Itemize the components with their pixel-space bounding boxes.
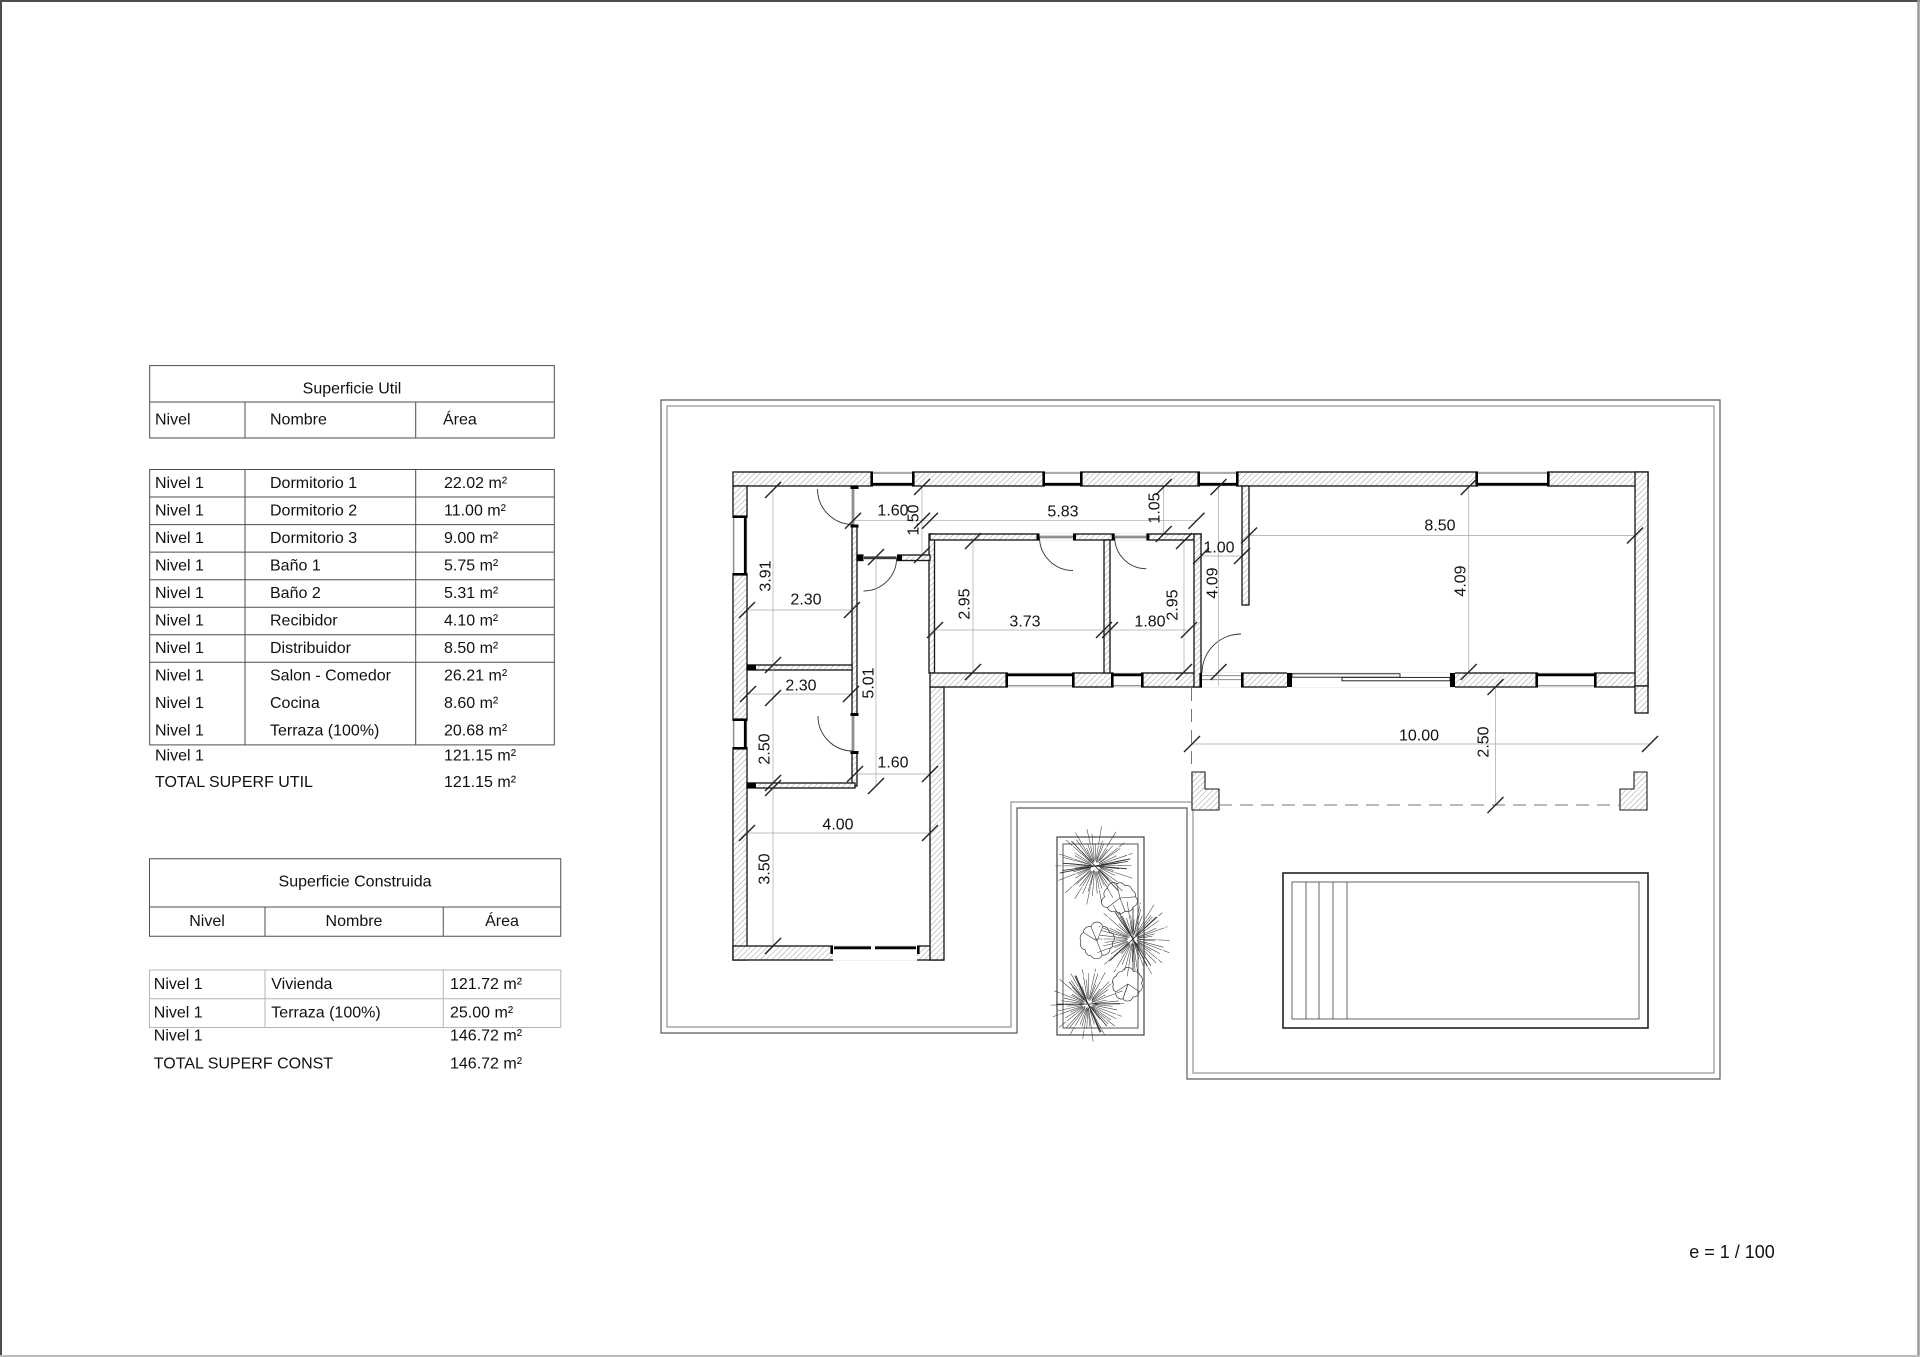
svg-text:1.00: 1.00 (1203, 540, 1234, 557)
svg-text:10.00: 10.00 (1399, 728, 1439, 745)
svg-text:Salon - Comedor: Salon - Comedor (270, 668, 392, 685)
svg-text:Vivienda: Vivienda (271, 976, 332, 993)
svg-text:5.31 m²: 5.31 m² (444, 585, 499, 602)
svg-text:2.30: 2.30 (790, 592, 821, 609)
svg-text:9.00 m²: 9.00 m² (444, 530, 499, 547)
svg-text:121.15 m²: 121.15 m² (444, 774, 517, 791)
svg-text:11.00 m²: 11.00 m² (444, 502, 507, 519)
svg-text:Nivel 1: Nivel 1 (155, 557, 204, 574)
svg-text:2.50: 2.50 (757, 733, 774, 764)
svg-text:20.68 m²: 20.68 m² (444, 723, 508, 740)
svg-text:5.01: 5.01 (861, 667, 878, 698)
svg-text:Nivel 1: Nivel 1 (155, 613, 204, 630)
svg-text:Cocina: Cocina (270, 695, 320, 712)
svg-text:26.21 m²: 26.21 m² (444, 668, 508, 685)
svg-text:Nivel 1: Nivel 1 (154, 976, 203, 993)
svg-text:Nivel 1: Nivel 1 (155, 475, 204, 492)
svg-text:Nivel 1: Nivel 1 (155, 723, 204, 740)
svg-text:5.75 m²: 5.75 m² (444, 557, 499, 574)
svg-text:1.05: 1.05 (1147, 492, 1164, 523)
svg-text:Nivel 1: Nivel 1 (154, 1028, 203, 1045)
svg-text:Dormitorio 2: Dormitorio 2 (270, 502, 357, 519)
svg-text:Recibidor: Recibidor (270, 613, 338, 630)
svg-text:Nivel 1: Nivel 1 (155, 668, 204, 685)
svg-text:1.80: 1.80 (1134, 614, 1165, 631)
svg-text:2.30: 2.30 (785, 678, 816, 695)
svg-text:4.09: 4.09 (1205, 567, 1222, 598)
svg-text:Nivel: Nivel (189, 913, 225, 930)
svg-text:4.10 m²: 4.10 m² (444, 613, 499, 630)
svg-text:121.72 m²: 121.72 m² (450, 976, 523, 993)
svg-text:2.50: 2.50 (1476, 726, 1493, 757)
svg-text:1.60: 1.60 (877, 755, 908, 772)
svg-text:Nivel 1: Nivel 1 (155, 640, 204, 657)
svg-text:2.95: 2.95 (957, 588, 974, 619)
svg-text:8.50: 8.50 (1424, 518, 1455, 535)
svg-text:Dormitorio 3: Dormitorio 3 (270, 530, 357, 547)
svg-text:5.83: 5.83 (1047, 504, 1078, 521)
svg-text:e = 1 / 100: e = 1 / 100 (1689, 1242, 1775, 1262)
svg-text:Nivel 1: Nivel 1 (155, 585, 204, 602)
svg-text:Baño 2: Baño 2 (270, 585, 321, 602)
svg-text:Superficie Construida: Superficie Construida (279, 874, 432, 891)
svg-text:TOTAL SUPERF UTIL: TOTAL SUPERF UTIL (155, 774, 313, 791)
svg-text:Baño 1: Baño 1 (270, 557, 321, 574)
svg-text:2.95: 2.95 (1165, 589, 1182, 620)
svg-text:Nivel 1: Nivel 1 (155, 530, 204, 547)
svg-text:3.73: 3.73 (1009, 614, 1040, 631)
svg-text:Terraza (100%): Terraza (100%) (271, 1005, 380, 1022)
svg-text:3.91: 3.91 (758, 560, 775, 591)
svg-text:146.72 m²: 146.72 m² (450, 1055, 523, 1072)
svg-text:Nivel 1: Nivel 1 (155, 502, 204, 519)
svg-text:Nivel 1: Nivel 1 (154, 1005, 203, 1022)
svg-text:Superficie Util: Superficie Util (303, 381, 402, 398)
svg-text:8.60 m²: 8.60 m² (444, 695, 499, 712)
svg-text:25.00 m²: 25.00 m² (450, 1005, 514, 1022)
svg-text:Nivel 1: Nivel 1 (155, 748, 204, 765)
svg-text:146.72 m²: 146.72 m² (450, 1028, 523, 1045)
svg-text:3.50: 3.50 (757, 853, 774, 884)
svg-text:4.09: 4.09 (1453, 565, 1470, 596)
svg-text:Distribuidor: Distribuidor (270, 640, 352, 657)
svg-text:Nombre: Nombre (270, 412, 327, 429)
svg-text:8.50 m²: 8.50 m² (444, 640, 499, 657)
svg-text:22.02 m²: 22.02 m² (444, 475, 508, 492)
svg-text:1.50: 1.50 (906, 504, 923, 535)
svg-text:121.15 m²: 121.15 m² (444, 748, 517, 765)
svg-text:4.00: 4.00 (822, 817, 853, 834)
svg-text:Nivel: Nivel (155, 412, 191, 429)
svg-text:Área: Área (485, 911, 519, 930)
svg-text:1.60: 1.60 (877, 503, 908, 520)
svg-text:Terraza (100%): Terraza (100%) (270, 723, 379, 740)
svg-text:Área: Área (443, 410, 477, 429)
svg-text:TOTAL SUPERF CONST: TOTAL SUPERF CONST (154, 1055, 334, 1072)
svg-text:Nombre: Nombre (326, 913, 383, 930)
svg-text:Nivel 1: Nivel 1 (155, 695, 204, 712)
svg-text:Dormitorio 1: Dormitorio 1 (270, 475, 357, 492)
